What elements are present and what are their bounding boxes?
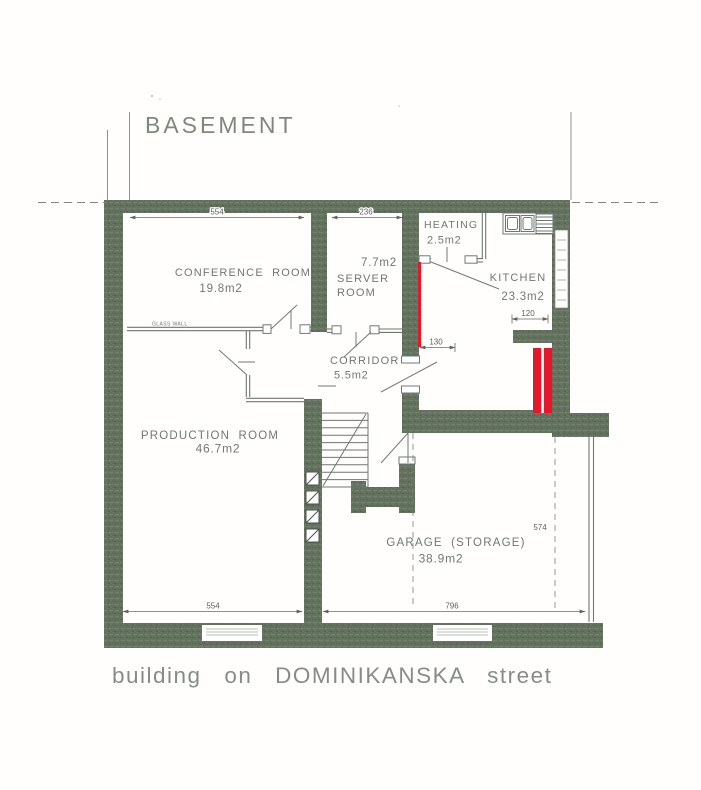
label-garage-name: GARAGE (STORAGE) (386, 537, 525, 549)
wall-left (104, 200, 123, 648)
door-conference (263, 305, 310, 333)
wall-right-jut (552, 413, 609, 437)
wall-bottom (104, 623, 603, 648)
door-garage-vestibule (381, 433, 415, 464)
label-server-name-2: ROOM (337, 287, 376, 299)
label-conference-name: CONFERENCE ROOM (175, 267, 311, 279)
label-conference-area: 19.8m2 (199, 283, 242, 295)
staircase (322, 413, 368, 487)
label-glass-wall: GLASS WALL (152, 322, 188, 328)
dim-server-width: 236 (359, 208, 373, 217)
label-kitchen-name: KITCHEN (490, 272, 547, 284)
window-garage (433, 625, 492, 641)
wall-vestibule-b (351, 487, 400, 507)
plan-title: BASEMENT (145, 112, 296, 138)
dim-kitchen-niche: 120 (521, 309, 535, 318)
door-server (332, 326, 379, 357)
wall-kitchen-niche (513, 330, 552, 343)
label-heating-name: HEATING (424, 219, 478, 231)
door-heating (419, 247, 499, 289)
label-heating-area: 2.5m2 (427, 235, 462, 247)
window-production (202, 625, 262, 641)
label-garage-area: 38.9m2 (419, 552, 464, 566)
label-corridor-name: CORRIDOR (330, 355, 400, 367)
reference-lines (38, 112, 662, 203)
wall-conference-server (311, 213, 327, 332)
label-production-name: PRODUCTION ROOM (141, 430, 279, 442)
kitchen-counter (503, 213, 553, 234)
scanned-floor-plan-page: 554 236 120 130 574 554 796 CONFERENCE R… (0, 0, 701, 790)
dim-production-width: 554 (206, 602, 220, 611)
door-production (219, 350, 255, 375)
red-wall-strip (418, 262, 421, 347)
scan-artifacts (151, 95, 400, 107)
label-kitchen-area: 23.3m2 (501, 291, 544, 303)
dim-kitchen-door: 130 (429, 338, 443, 347)
dim-conference-width: 554 (210, 208, 224, 217)
wall-garage-top (415, 410, 552, 433)
stove-hatch (536, 214, 553, 234)
label-production-area: 46.7m2 (196, 442, 241, 456)
label-server-name-1: SERVER (337, 273, 389, 285)
kitchen-wall-shaft (555, 230, 568, 308)
wall-top (104, 200, 570, 213)
label-server-area: 7.7m2 (361, 257, 397, 269)
plan-caption: building on DOMINIKANSKA street (112, 663, 552, 688)
wall-server-kitchen (402, 213, 419, 363)
room-labels: CONFERENCE ROOM 19.8m2 7.7m2 SERVER ROOM… (141, 219, 546, 566)
dim-garage-depth: 574 (533, 523, 547, 532)
floor-plan-svg: 554 236 120 130 574 554 796 CONFERENCE R… (0, 0, 701, 790)
label-corridor-area: 5.5m2 (334, 370, 369, 382)
dim-garage-width: 796 (445, 602, 459, 611)
